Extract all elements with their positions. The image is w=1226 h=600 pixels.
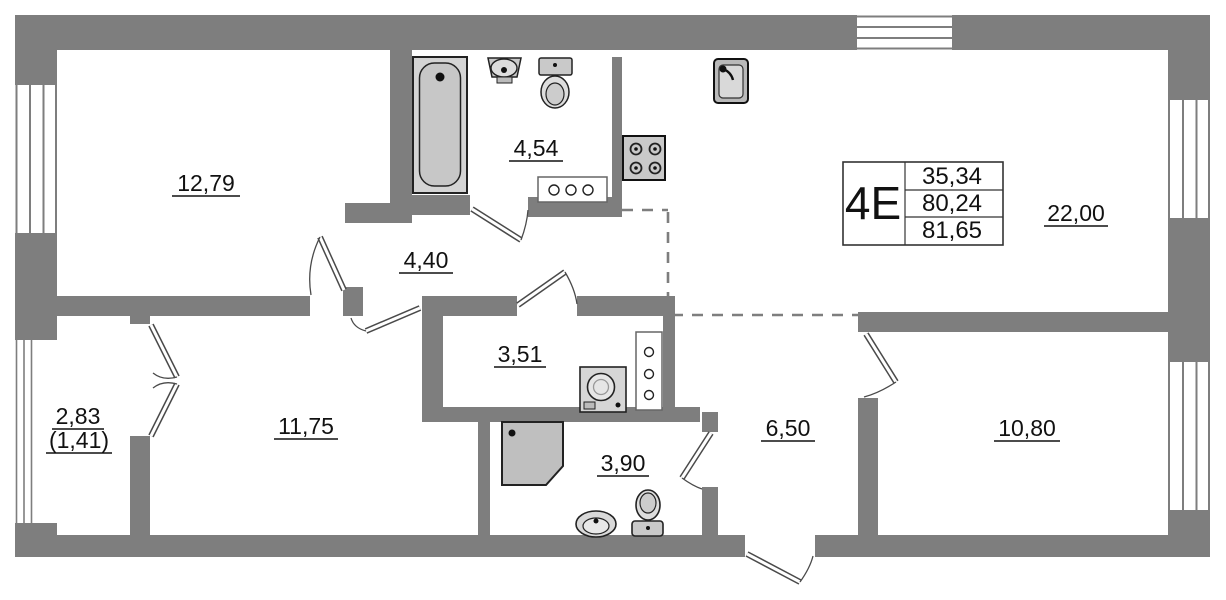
stamp-unit: 4E [845,177,901,229]
window-left [17,85,57,233]
counter-icon [538,177,607,202]
basin-icon [488,58,521,83]
wc-basin-icon [576,511,616,537]
area-stamp: 4E 35,34 80,24 81,65 [843,162,1003,245]
label-laundry: 3,51 [498,341,543,367]
label-balcony: 2,83 [56,403,101,429]
balcony-glazing [17,340,32,523]
label-bathroom: 4,54 [514,135,559,161]
label-room3: 10,80 [998,415,1056,441]
washing-machine-icon [580,367,626,412]
bathtub-icon [413,57,467,193]
wc-toilet-icon [632,490,663,536]
door-laundry [518,272,577,305]
window-top [857,17,952,49]
window-right-living [1169,100,1209,218]
label-entry: 6,50 [766,415,811,441]
floor-plan-canvas: 4E 35,34 80,24 81,65 12,79 4,54 4,40 22,… [0,0,1226,600]
door-bathroom [472,209,528,240]
door-room3 [864,334,896,397]
window-right-room3 [1169,362,1209,510]
kitchen-sink-icon [714,59,748,103]
cabinet-icon [636,332,662,410]
label-living: 22,00 [1047,200,1105,226]
entrance-door [747,554,813,582]
balcony-french-doors [151,325,177,436]
label-room2: 11,75 [278,413,334,439]
door-wc [682,433,711,489]
stove-icon [623,136,665,180]
stamp-row2: 80,24 [922,190,982,217]
label-wc: 3,90 [601,450,646,476]
label-room1: 12,79 [177,170,235,196]
stamp-row3: 81,65 [922,217,982,244]
floor-plan: 4E 35,34 80,24 81,65 12,79 4,54 4,40 22,… [0,0,1226,600]
shower-icon [502,422,563,485]
door-room1 [310,237,344,295]
interior-walls [15,50,1168,537]
label-balcony-secondary: (1,41) [49,427,109,453]
toilet-icon [539,58,572,108]
stamp-row1: 35,34 [922,163,982,190]
label-hall: 4,40 [404,247,449,273]
